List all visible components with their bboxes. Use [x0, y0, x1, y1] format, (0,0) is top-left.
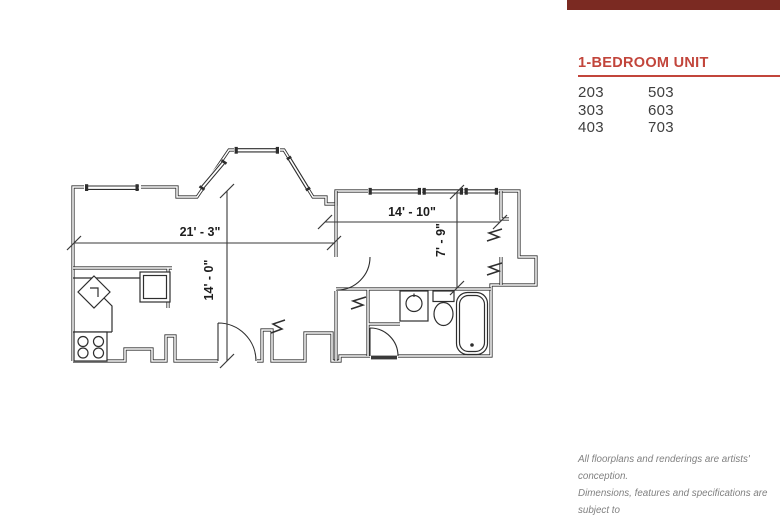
bedroom-depth-label: 7' - 9": [434, 223, 448, 257]
bedroom-door: [337, 257, 370, 290]
entry-door: [218, 323, 256, 361]
disclaimer-line: Dimensions, features and specifications …: [578, 485, 778, 517]
kitchen-counter: [73, 278, 140, 332]
unit-number: 703: [648, 119, 718, 137]
unit-number-list: 203 303 403 503 603 703: [578, 84, 780, 137]
kitchen-sink-icon: [78, 276, 110, 308]
legend-title: 1-BEDROOM UNIT: [578, 55, 780, 72]
floorplan-page: 21' - 3" 14' - 10" 14' - 0" 7' - 9" 1-BE…: [0, 0, 780, 517]
toilet-icon: [433, 291, 454, 302]
dimension-lines: [67, 184, 507, 368]
living-depth-label: 14' - 0": [202, 260, 216, 301]
unit-number: 403: [578, 119, 648, 137]
unit-legend: 1-BEDROOM UNIT 203 303 403 503 603 703: [578, 55, 780, 137]
doors: [218, 257, 398, 361]
unit-number: 203: [578, 84, 648, 102]
disclaimer-line: All floorplans and renderings are artist…: [578, 451, 778, 485]
interior-walls: [73, 191, 509, 361]
unit-number: 303: [578, 102, 648, 120]
bathroom-door: [370, 328, 398, 356]
kitchen-fixtures: [73, 272, 170, 361]
unit-number: 603: [648, 102, 718, 120]
unit-number-column-2: 503 603 703: [648, 84, 718, 137]
disclaimer: All floorplans and renderings are artist…: [578, 451, 778, 517]
living-width-label: 21' - 3": [180, 225, 221, 239]
door-threshold: [371, 356, 397, 360]
unit-number: 503: [648, 84, 718, 102]
bedroom-width-label: 14' - 10": [388, 205, 436, 219]
legend-rule: [578, 75, 780, 77]
unit-number-column-1: 203 303 403: [578, 84, 648, 137]
dimension-labels: 21' - 3" 14' - 10" 14' - 0" 7' - 9": [180, 205, 448, 300]
refrigerator-icon: [140, 272, 170, 302]
